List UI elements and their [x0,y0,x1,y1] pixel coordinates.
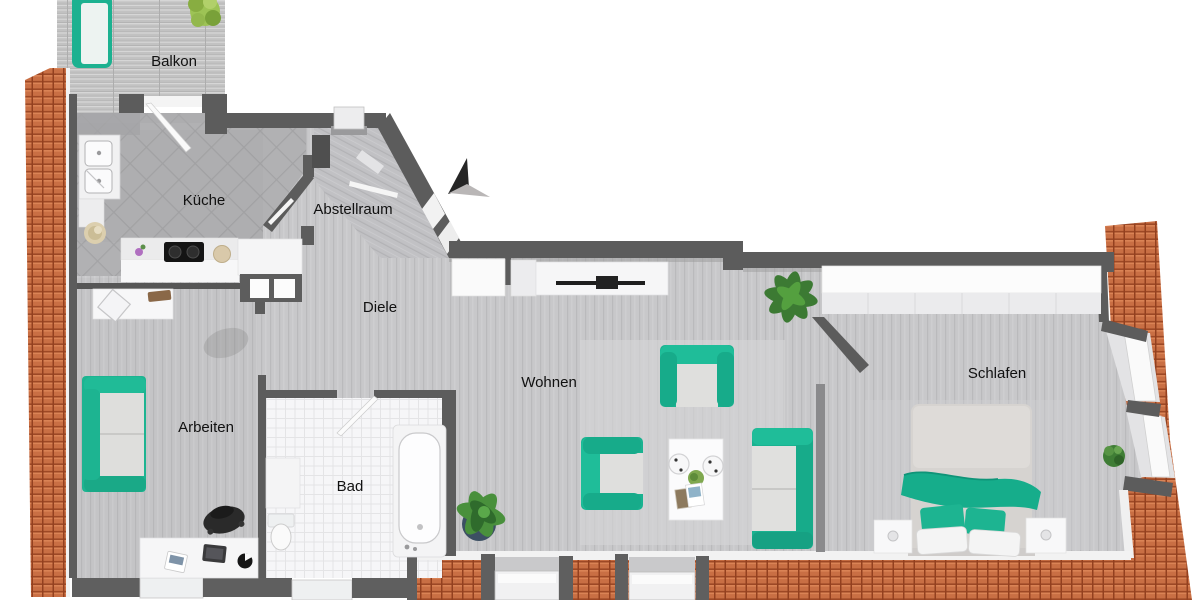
svg-text:Wohnen: Wohnen [521,374,577,391]
svg-text:Schlafen: Schlafen [968,365,1026,382]
svg-text:Küche: Küche [183,192,226,209]
svg-text:Balkon: Balkon [151,53,197,70]
svg-text:Bad: Bad [337,478,364,495]
svg-text:Arbeiten: Arbeiten [178,419,234,436]
svg-text:Abstellraum: Abstellraum [313,201,392,218]
svg-text:Diele: Diele [363,299,397,316]
